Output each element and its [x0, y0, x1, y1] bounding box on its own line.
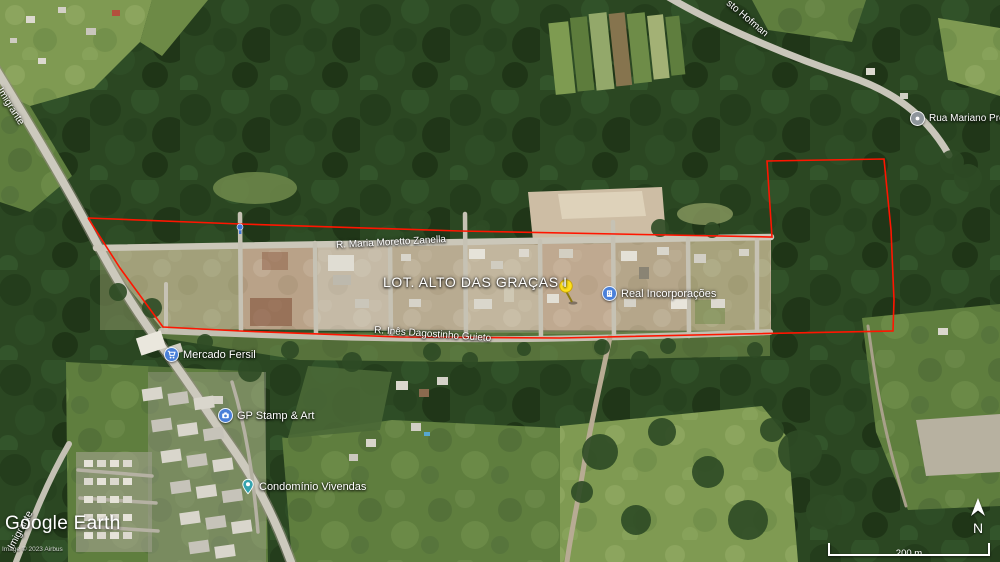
map-canvas[interactable]: R. Maria Moretto Zanella R. Inês Dagosti…	[0, 0, 1000, 562]
north-arrow-icon	[970, 498, 986, 517]
camera-icon	[218, 408, 233, 423]
poi-gp-stamp-art[interactable]: GP Stamp & Art	[218, 408, 314, 423]
compass: N	[964, 498, 992, 535]
poi-label: Condomínio Vivendas	[259, 481, 366, 493]
poi-label: Mercado Fersil	[183, 349, 256, 361]
poi-real-incorporacoes[interactable]: Real Incorporações	[602, 286, 716, 301]
poi-label: GP Stamp & Art	[237, 410, 314, 422]
imagery-copyright: Image © 2023 Airbus	[2, 546, 63, 553]
road-pin-icon	[910, 111, 925, 126]
place-pin-icon	[241, 478, 255, 495]
poi-condominio-vivendas[interactable]: Condomínio Vivendas	[241, 478, 366, 495]
poi-label: Rua Mariano Pretto	[929, 113, 1000, 124]
lot-placemark-label: LOT. ALTO DAS GRAÇAS I	[383, 274, 568, 290]
poi-rua-mariano-pretto[interactable]: Rua Mariano Pretto	[910, 111, 1000, 126]
scale-label: 200 m	[896, 549, 922, 559]
shopping-cart-icon	[164, 347, 179, 362]
poi-mercado-fersil[interactable]: Mercado Fersil	[164, 347, 256, 362]
poi-label: Real Incorporações	[621, 288, 716, 300]
building-icon	[602, 286, 617, 301]
scale-bar: 200 m	[828, 543, 990, 556]
compass-north-label: N	[964, 522, 992, 535]
google-earth-logo: Google Earth	[5, 513, 121, 535]
